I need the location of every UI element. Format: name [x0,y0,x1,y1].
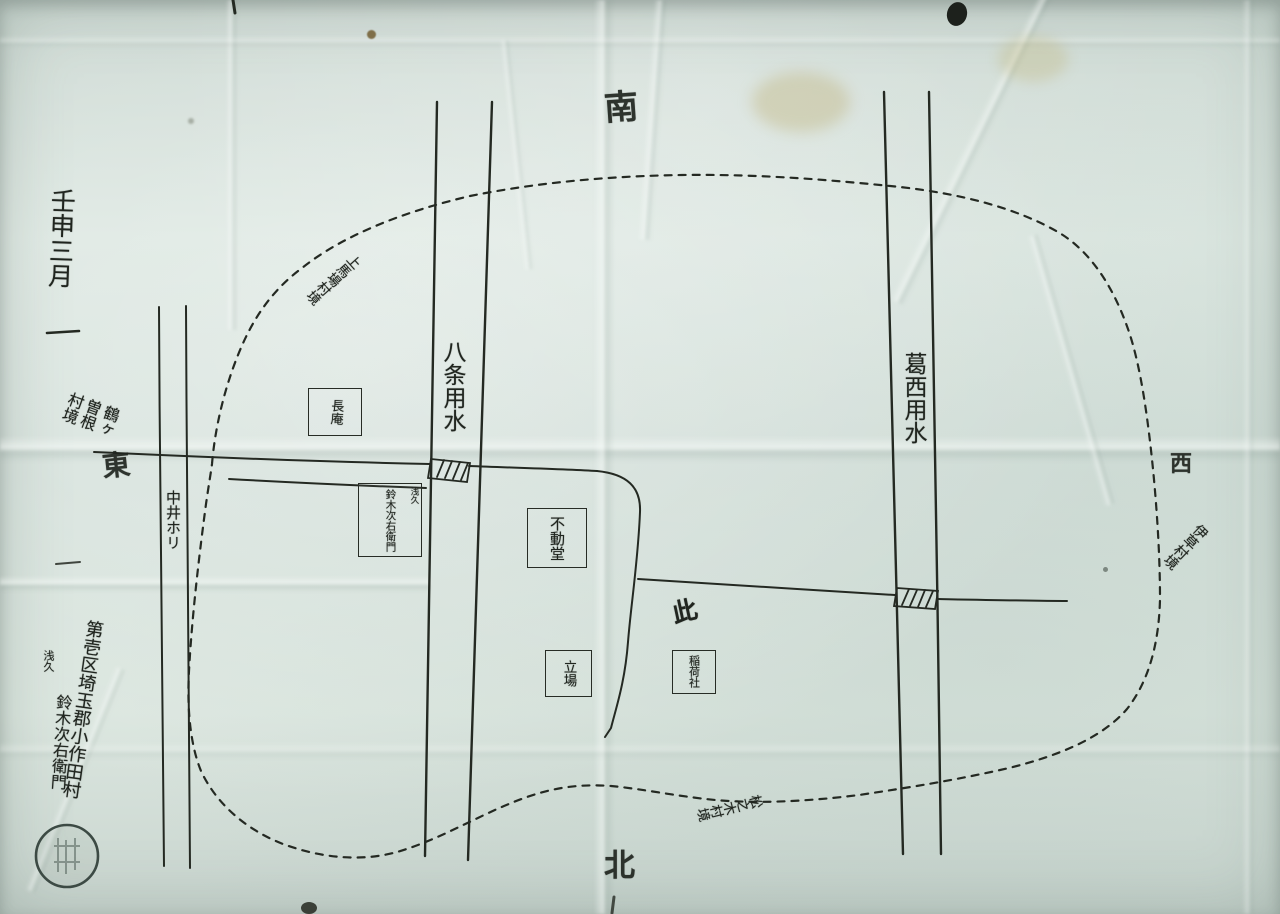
compass-south: 南 [602,79,639,130]
landmark-box-inari: 稲荷社 [672,650,716,694]
kasai-canal-line [884,92,903,854]
landmark-box-tateba: 立場 [545,650,592,697]
nakai-ditch-label: 中井ホリ [161,490,184,550]
landmark-label: 長庵 [327,399,342,426]
landmark-box-fudodo: 不動堂 [527,508,587,568]
road-upper [469,466,597,471]
old-japanese-village-map: 南 北 東 西 壬申三月 八条用水 葛西用水 中井ホリ 上馬場村境 鶴ヶ曽根村境… [0,0,1280,914]
kasai-canal-line [929,92,941,854]
ink-blot [301,902,317,914]
nakai-ditch-line [186,306,190,868]
hachijo-canal-label: 八条用水 [438,340,466,432]
kasai-canal-label: 葛西用水 [899,352,927,444]
map-linework [0,0,1280,914]
compass-north: 北 [604,840,635,885]
date-dash-stroke [47,331,79,333]
edge-mark [612,897,614,913]
margin-dash-stroke [56,562,80,564]
landmark-label: 立場 [561,660,577,687]
signature-annotation: 浅久 [42,650,54,672]
compass-west: 西 [1170,446,1192,478]
ink-blot [944,0,970,28]
landmark-label: 不動堂 [548,516,566,561]
round-seal [36,825,98,887]
landmark-box-suzuki-plot: 浅久 鈴木次右衛門 [358,483,422,557]
landmark-label: 稲荷社 [688,655,701,689]
bridge-kasai [894,588,938,609]
nakai-ditch-line [159,307,164,866]
landmark-box-chouan: 長庵 [308,388,362,436]
road-lower [938,599,1067,601]
plot-annotation: 浅久 [409,487,418,504]
road-center-curve [597,471,640,737]
compass-east: 東 [100,443,132,486]
edge-mark [233,0,235,13]
hachijo-canal-line [468,102,492,860]
road-upper [94,452,430,464]
landmark-label: 鈴木次右衛門 [385,489,396,552]
bridge-hachijo [428,459,470,482]
date-annotation: 壬申三月 [42,187,78,288]
